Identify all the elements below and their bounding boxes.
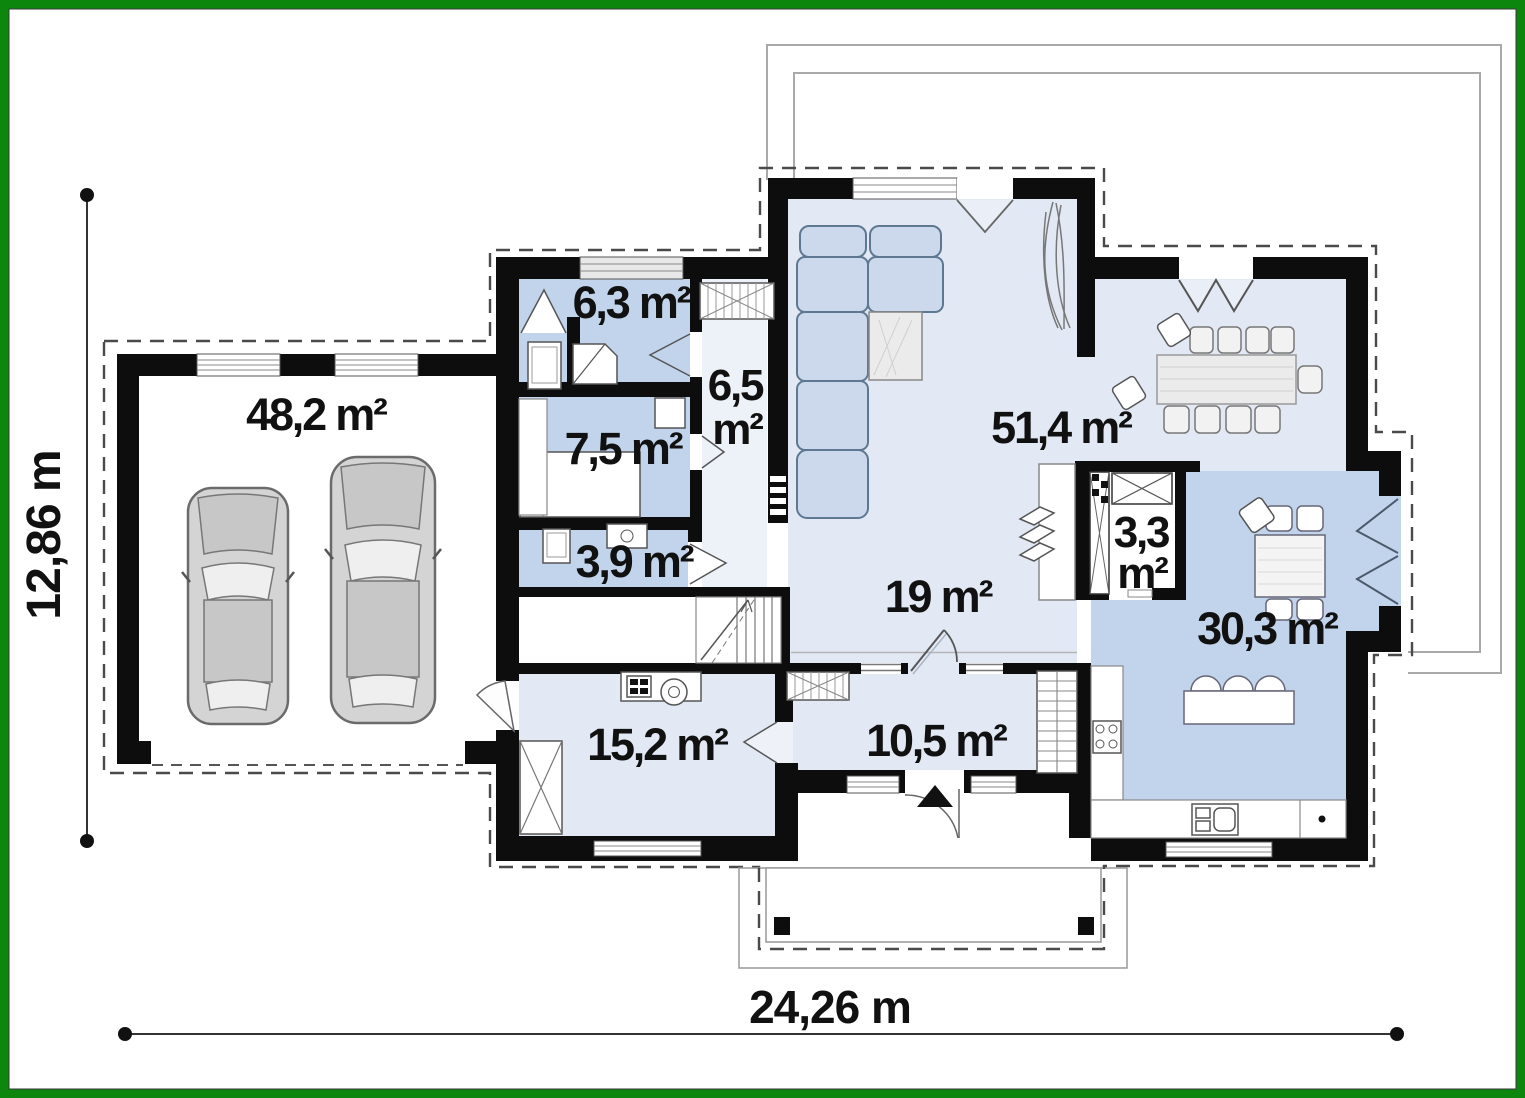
- svg-text:24,26 m: 24,26 m: [749, 981, 911, 1033]
- svg-text:48,2 m²: 48,2 m²: [246, 389, 388, 440]
- svg-text:10,5 m²: 10,5 m²: [866, 715, 1008, 766]
- svg-text:3,9 m²: 3,9 m²: [576, 536, 695, 587]
- svg-text:6,5: 6,5: [708, 361, 764, 410]
- svg-text:m²: m²: [1117, 549, 1168, 598]
- svg-text:m²: m²: [712, 405, 763, 454]
- svg-text:6,3 m²: 6,3 m²: [573, 277, 692, 328]
- svg-text:7,5 m²: 7,5 m²: [565, 423, 684, 474]
- svg-text:15,2 m²: 15,2 m²: [587, 719, 729, 770]
- svg-text:19 m²: 19 m²: [885, 571, 994, 622]
- svg-text:12,86 m: 12,86 m: [18, 450, 71, 619]
- svg-text:51,4 m²: 51,4 m²: [991, 402, 1133, 453]
- svg-text:30,3 m²: 30,3 m²: [1197, 603, 1339, 654]
